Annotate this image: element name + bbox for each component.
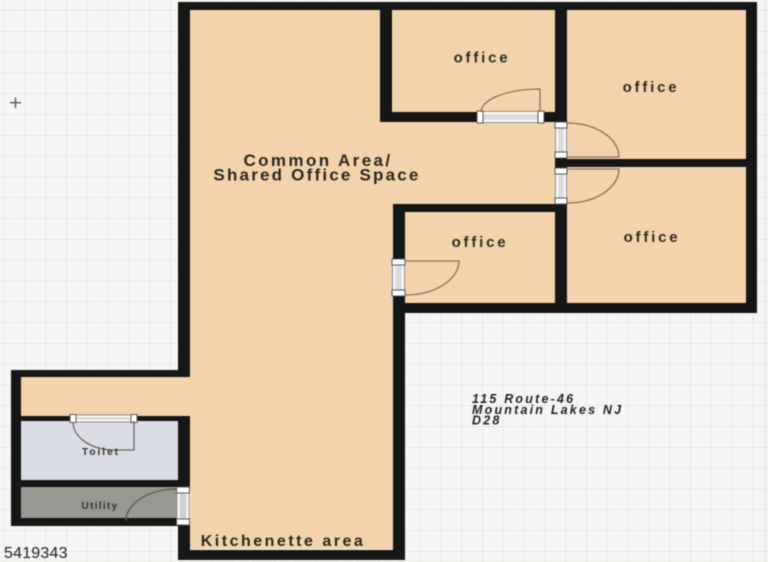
svg-text:Toilet: Toilet xyxy=(82,447,120,458)
svg-text:Kitchenette area: Kitchenette area xyxy=(201,533,366,550)
svg-text:office: office xyxy=(624,229,681,246)
svg-text:office: office xyxy=(452,234,509,251)
svg-text:Shared Office Space: Shared Office Space xyxy=(213,166,420,185)
svg-text:D28: D28 xyxy=(472,414,502,428)
svg-text:office: office xyxy=(623,79,680,96)
svg-text:office: office xyxy=(454,50,511,67)
svg-text:5419343: 5419343 xyxy=(4,545,68,562)
svg-text:Utility: Utility xyxy=(82,501,119,512)
